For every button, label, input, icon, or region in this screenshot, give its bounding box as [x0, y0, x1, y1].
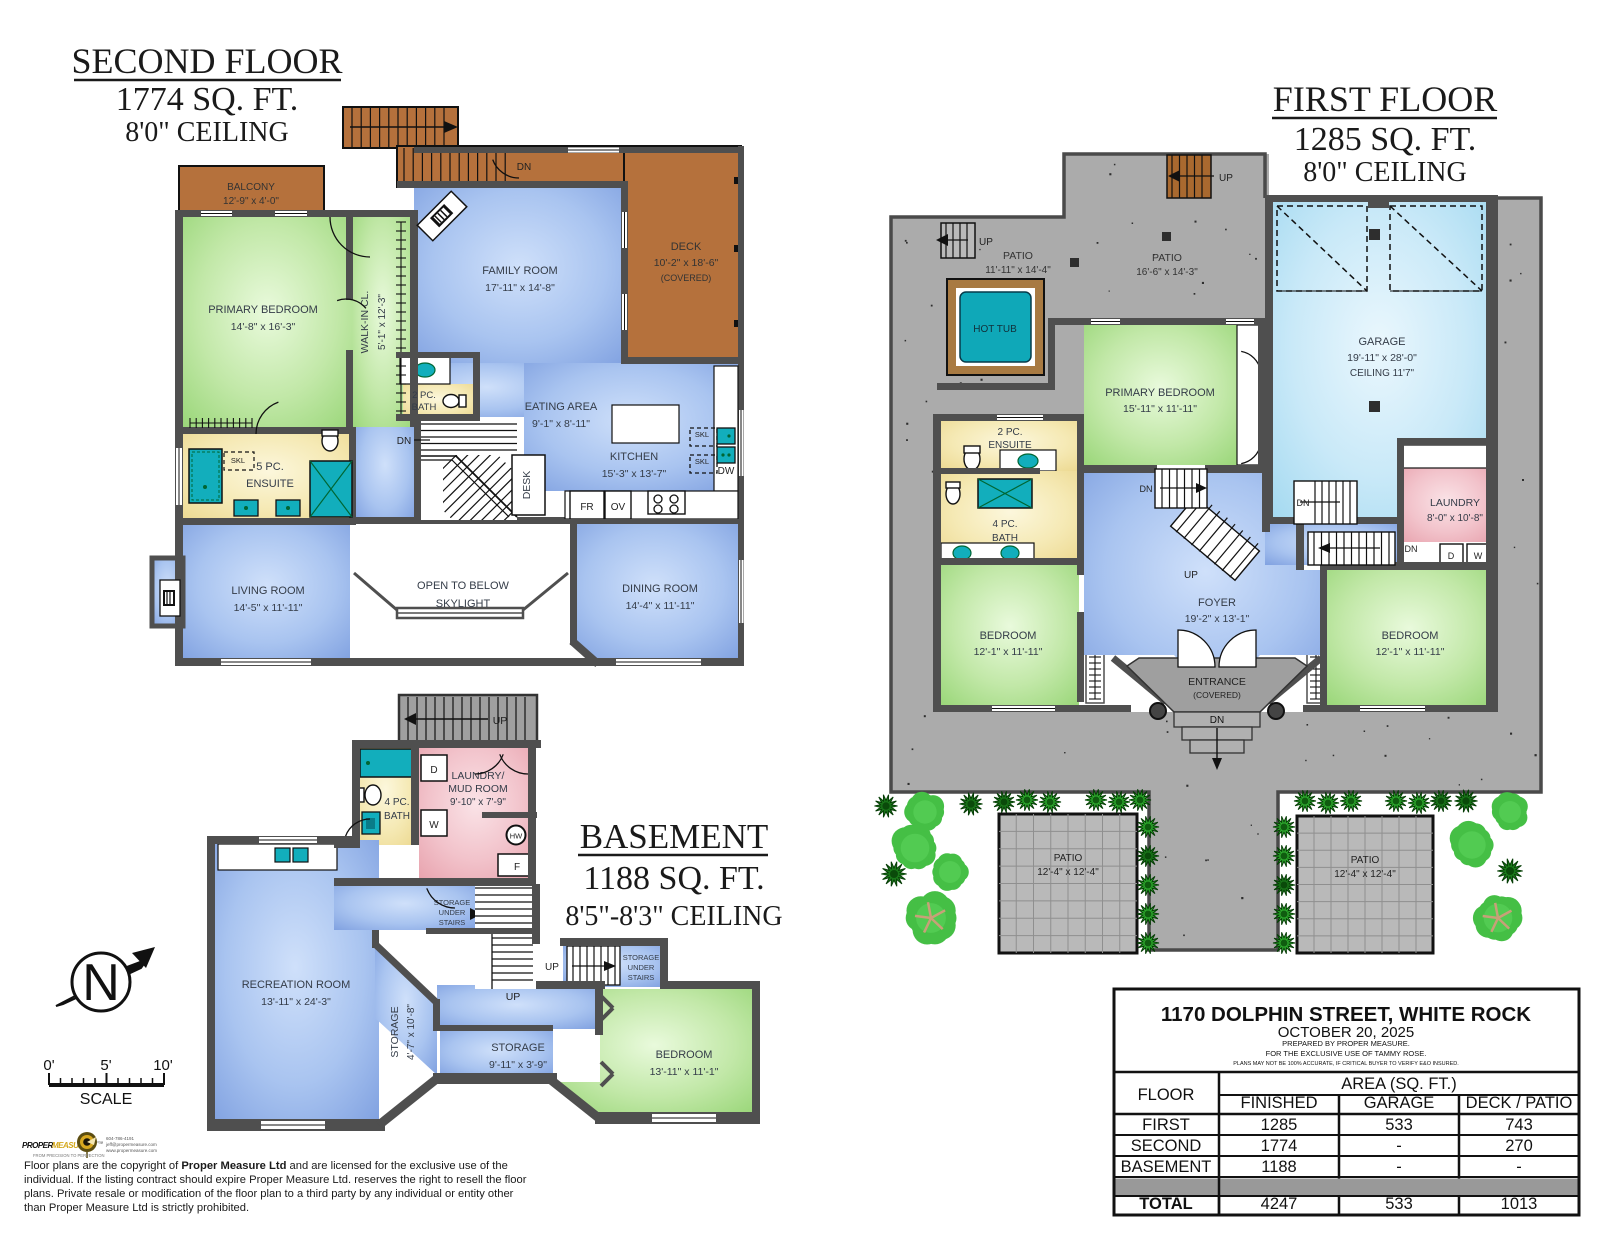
svg-text:N: N: [82, 954, 120, 1012]
svg-text:12'-4" x 12'-4": 12'-4" x 12'-4": [1334, 869, 1396, 880]
svg-text:DN: DN: [1297, 498, 1310, 508]
svg-text:STORAGE: STORAGE: [491, 1042, 545, 1054]
svg-text:KITCHEN: KITCHEN: [610, 451, 658, 463]
svg-text:SECOND FLOOR: SECOND FLOOR: [71, 41, 342, 81]
svg-text:4247: 4247: [1261, 1195, 1298, 1213]
svg-text:PATIO: PATIO: [1351, 855, 1380, 866]
svg-text:jeff@propermeasure.com: jeff@propermeasure.com: [105, 1142, 157, 1147]
svg-text:FOR THE EXCLUSIVE USE OF TAMMY: FOR THE EXCLUSIVE USE OF TAMMY ROSE.: [1266, 1049, 1427, 1058]
svg-text:UP: UP: [1184, 570, 1198, 581]
svg-text:-: -: [1396, 1158, 1402, 1176]
svg-text:13'-11" x 24'-3": 13'-11" x 24'-3": [261, 996, 331, 1008]
svg-text:UP: UP: [979, 237, 993, 248]
svg-text:9'-1" x 8'-11": 9'-1" x 8'-11": [532, 418, 590, 430]
svg-text:-: -: [1516, 1158, 1522, 1176]
svg-text:FROM PRECISION TO PERFECTION: FROM PRECISION TO PERFECTION: [33, 1153, 105, 1158]
svg-text:F: F: [514, 862, 520, 873]
svg-text:DN: DN: [517, 162, 531, 173]
svg-text:STAIRS: STAIRS: [439, 918, 466, 927]
svg-text:PATIO: PATIO: [1152, 252, 1182, 264]
svg-text:SKL: SKL: [231, 456, 245, 465]
svg-text:15'-3" x 13'-7": 15'-3" x 13'-7": [602, 468, 667, 480]
svg-text:UNDER: UNDER: [439, 908, 466, 917]
svg-text:FINISHED: FINISHED: [1240, 1094, 1317, 1112]
svg-text:8'0" CEILING: 8'0" CEILING: [1303, 157, 1466, 188]
svg-text:GARAGE: GARAGE: [1364, 1094, 1435, 1112]
svg-text:DN: DN: [397, 436, 411, 447]
svg-text:RECREATION ROOM: RECREATION ROOM: [242, 979, 351, 991]
svg-text:1774: 1774: [1261, 1137, 1298, 1155]
svg-text:ENSUITE: ENSUITE: [988, 440, 1032, 451]
svg-text:LIVING ROOM: LIVING ROOM: [231, 585, 304, 597]
svg-text:PROPER: PROPER: [22, 1141, 54, 1150]
svg-text:OV: OV: [611, 502, 626, 513]
svg-text:DINING ROOM: DINING ROOM: [622, 583, 698, 595]
svg-text:UNDER: UNDER: [628, 963, 655, 972]
svg-text:533: 533: [1385, 1116, 1413, 1134]
svg-text:PRIMARY BEDROOM: PRIMARY BEDROOM: [1105, 387, 1215, 399]
svg-text:12'-4" x 12'-4": 12'-4" x 12'-4": [1037, 867, 1099, 878]
svg-text:plans. Private resale or modi: plans. Private resale or modification of…: [24, 1188, 514, 1200]
svg-text:D: D: [1448, 551, 1455, 561]
svg-text:PATIO: PATIO: [1003, 250, 1033, 262]
svg-text:BATH: BATH: [992, 533, 1018, 544]
svg-text:-: -: [1396, 1137, 1402, 1155]
svg-text:4 PC.: 4 PC.: [384, 797, 409, 808]
svg-text:12'-1" x 11'-11": 12'-1" x 11'-11": [974, 646, 1043, 658]
svg-text:GARAGE: GARAGE: [1358, 336, 1405, 348]
svg-text:SECOND: SECOND: [1131, 1137, 1202, 1155]
svg-text:FIRST: FIRST: [1142, 1116, 1190, 1134]
svg-text:than Proper Measure Ltd is str: than Proper Measure Ltd is strictly proh…: [24, 1202, 249, 1214]
svg-text:FOYER: FOYER: [1198, 597, 1236, 609]
svg-text:14'-4" x 11'-11": 14'-4" x 11'-11": [626, 600, 695, 612]
svg-text:DW: DW: [718, 466, 735, 477]
svg-text:MUD ROOM: MUD ROOM: [448, 783, 508, 795]
svg-text:STAIRS: STAIRS: [628, 973, 655, 982]
svg-text:14'-5" x 11'-11": 14'-5" x 11'-11": [234, 602, 303, 614]
svg-text:PREPARED BY PROPER MEASURE.: PREPARED BY PROPER MEASURE.: [1282, 1039, 1410, 1048]
svg-text:8'5"-8'3" CEILING: 8'5"-8'3" CEILING: [565, 901, 782, 932]
svg-text:2 PC.: 2 PC.: [997, 427, 1022, 438]
svg-text:SCALE: SCALE: [80, 1091, 132, 1108]
svg-text:EATING AREA: EATING AREA: [525, 401, 598, 413]
svg-text:1285 SQ. FT.: 1285 SQ. FT.: [1294, 121, 1477, 158]
svg-text:1188: 1188: [1261, 1158, 1296, 1176]
svg-text:9'-11" x 3'-9": 9'-11" x 3'-9": [489, 1059, 547, 1071]
svg-text:12'-1" x 11'-11": 12'-1" x 11'-11": [1376, 646, 1445, 658]
svg-text:FIRST FLOOR: FIRST FLOOR: [1273, 79, 1497, 119]
svg-text:AREA (SQ. FT.): AREA (SQ. FT.): [1341, 1075, 1457, 1093]
svg-text:19'-11" x 28'-0": 19'-11" x 28'-0": [1347, 352, 1417, 364]
svg-text:DESK: DESK: [521, 471, 533, 500]
svg-text:STORAGE: STORAGE: [389, 1006, 401, 1057]
svg-text:5 PC.: 5 PC.: [256, 461, 284, 473]
svg-text:BASEMENT: BASEMENT: [580, 817, 769, 856]
svg-text:SKYLIGHT: SKYLIGHT: [436, 598, 491, 610]
svg-text:ENSUITE: ENSUITE: [246, 478, 294, 490]
svg-text:UP: UP: [506, 991, 521, 1003]
svg-text:17'-11" x 14'-8": 17'-11" x 14'-8": [485, 282, 555, 294]
svg-text:UP: UP: [545, 962, 559, 973]
svg-text:SKL: SKL: [695, 430, 709, 439]
svg-text:Floor plans are the copyright: Floor plans are the copyright of Proper …: [24, 1160, 508, 1172]
svg-text:604-786-4191: 604-786-4191: [106, 1136, 135, 1141]
svg-text:0': 0': [43, 1057, 54, 1074]
svg-text:5'-1" x 12'-3": 5'-1" x 12'-3": [377, 294, 388, 350]
svg-text:HOT TUB: HOT TUB: [973, 324, 1017, 335]
svg-text:14'-8" x 16'-3": 14'-8" x 16'-3": [231, 321, 296, 333]
svg-text:BEDROOM: BEDROOM: [1382, 630, 1439, 642]
svg-text:1285: 1285: [1261, 1116, 1298, 1134]
svg-text:15'-11" x 11'-11": 15'-11" x 11'-11": [1123, 403, 1197, 415]
svg-text:PRIMARY BEDROOM: PRIMARY BEDROOM: [208, 304, 318, 316]
svg-text:BATH: BATH: [384, 811, 410, 822]
svg-text:8'-0" x 10'-8": 8'-0" x 10'-8": [1427, 513, 1483, 524]
svg-text:STORAGE: STORAGE: [434, 898, 471, 907]
svg-text:DECK: DECK: [671, 241, 702, 253]
svg-text:BALCONY: BALCONY: [227, 182, 275, 193]
svg-text:D: D: [430, 765, 437, 776]
svg-text:10': 10': [153, 1057, 173, 1074]
svg-text:16'-6" x 14'-3": 16'-6" x 14'-3": [1136, 267, 1198, 278]
svg-text:1170 DOLPHIN STREET, WHITE ROC: 1170 DOLPHIN STREET, WHITE ROCK: [1161, 1003, 1531, 1026]
svg-text:WALK-IN CL.: WALK-IN CL.: [359, 291, 371, 354]
svg-text:743: 743: [1505, 1116, 1533, 1134]
svg-text:UP: UP: [493, 715, 508, 727]
svg-text:OPEN TO BELOW: OPEN TO BELOW: [417, 580, 510, 592]
svg-text:CEILING 11'7": CEILING 11'7": [1350, 368, 1415, 379]
svg-text:FLOOR: FLOOR: [1138, 1086, 1195, 1104]
svg-text:270: 270: [1505, 1137, 1533, 1155]
svg-text:www.propermeasure.com: www.propermeasure.com: [106, 1148, 157, 1153]
svg-text:8'0" CEILING: 8'0" CEILING: [125, 117, 288, 148]
svg-text:TOTAL: TOTAL: [1139, 1195, 1192, 1213]
svg-text:ENTRANCE: ENTRANCE: [1188, 676, 1246, 688]
svg-text:BEDROOM: BEDROOM: [656, 1049, 713, 1061]
svg-text:UP: UP: [1219, 173, 1233, 184]
svg-text:BASEMENT: BASEMENT: [1121, 1158, 1212, 1176]
svg-text:2 PC.: 2 PC.: [412, 390, 436, 401]
svg-text:4 PC.: 4 PC.: [992, 519, 1017, 530]
svg-text:1774 SQ. FT.: 1774 SQ. FT.: [116, 81, 299, 118]
svg-text:FAMILY ROOM: FAMILY ROOM: [482, 265, 557, 277]
svg-text:19'-2" x 13'-1": 19'-2" x 13'-1": [1185, 613, 1250, 625]
svg-text:11'-11" x 14'-4": 11'-11" x 14'-4": [985, 265, 1051, 276]
svg-text:BEDROOM: BEDROOM: [980, 630, 1037, 642]
svg-text:10'-2" x 18'-6": 10'-2" x 18'-6": [654, 257, 719, 269]
svg-text:533: 533: [1385, 1195, 1413, 1213]
svg-text:PLANS MAY NOT BE 100% ACCURATE: PLANS MAY NOT BE 100% ACCURATE, IF CRITI…: [1233, 1061, 1459, 1067]
svg-text:(COVERED): (COVERED): [661, 273, 712, 283]
svg-text:LAUNDRY: LAUNDRY: [1430, 497, 1480, 509]
svg-text:SKL: SKL: [695, 457, 709, 466]
svg-text:1188 SQ. FT.: 1188 SQ. FT.: [583, 860, 764, 897]
svg-text:individual. If the listing co: individual. If the listing contract shou…: [24, 1174, 527, 1186]
svg-text:1013: 1013: [1501, 1195, 1538, 1213]
svg-text:9'-10" x 7'-9": 9'-10" x 7'-9": [450, 797, 506, 808]
svg-text:(COVERED): (COVERED): [1193, 690, 1241, 700]
svg-text:4'-7" x 10'-8": 4'-7" x 10'-8": [406, 1004, 417, 1060]
svg-text:LAUNDRY/: LAUNDRY/: [452, 770, 505, 782]
svg-text:DN: DN: [1140, 484, 1153, 494]
svg-text:PATIO: PATIO: [1054, 853, 1083, 864]
svg-text:HW: HW: [510, 832, 523, 841]
svg-text:DN: DN: [1405, 544, 1418, 554]
svg-text:DN: DN: [1210, 715, 1224, 726]
svg-text:W: W: [429, 820, 439, 831]
svg-text:DECK / PATIO: DECK / PATIO: [1466, 1094, 1573, 1112]
svg-text:FR: FR: [580, 502, 593, 513]
svg-text:13'-11" x 11'-1": 13'-11" x 11'-1": [650, 1066, 719, 1078]
svg-text:STORAGE: STORAGE: [623, 953, 660, 962]
svg-text:W: W: [1474, 551, 1483, 561]
svg-text:BATH: BATH: [412, 402, 437, 413]
svg-text:12'-9" x 4'-0": 12'-9" x 4'-0": [223, 196, 279, 207]
svg-text:5': 5': [100, 1057, 111, 1074]
